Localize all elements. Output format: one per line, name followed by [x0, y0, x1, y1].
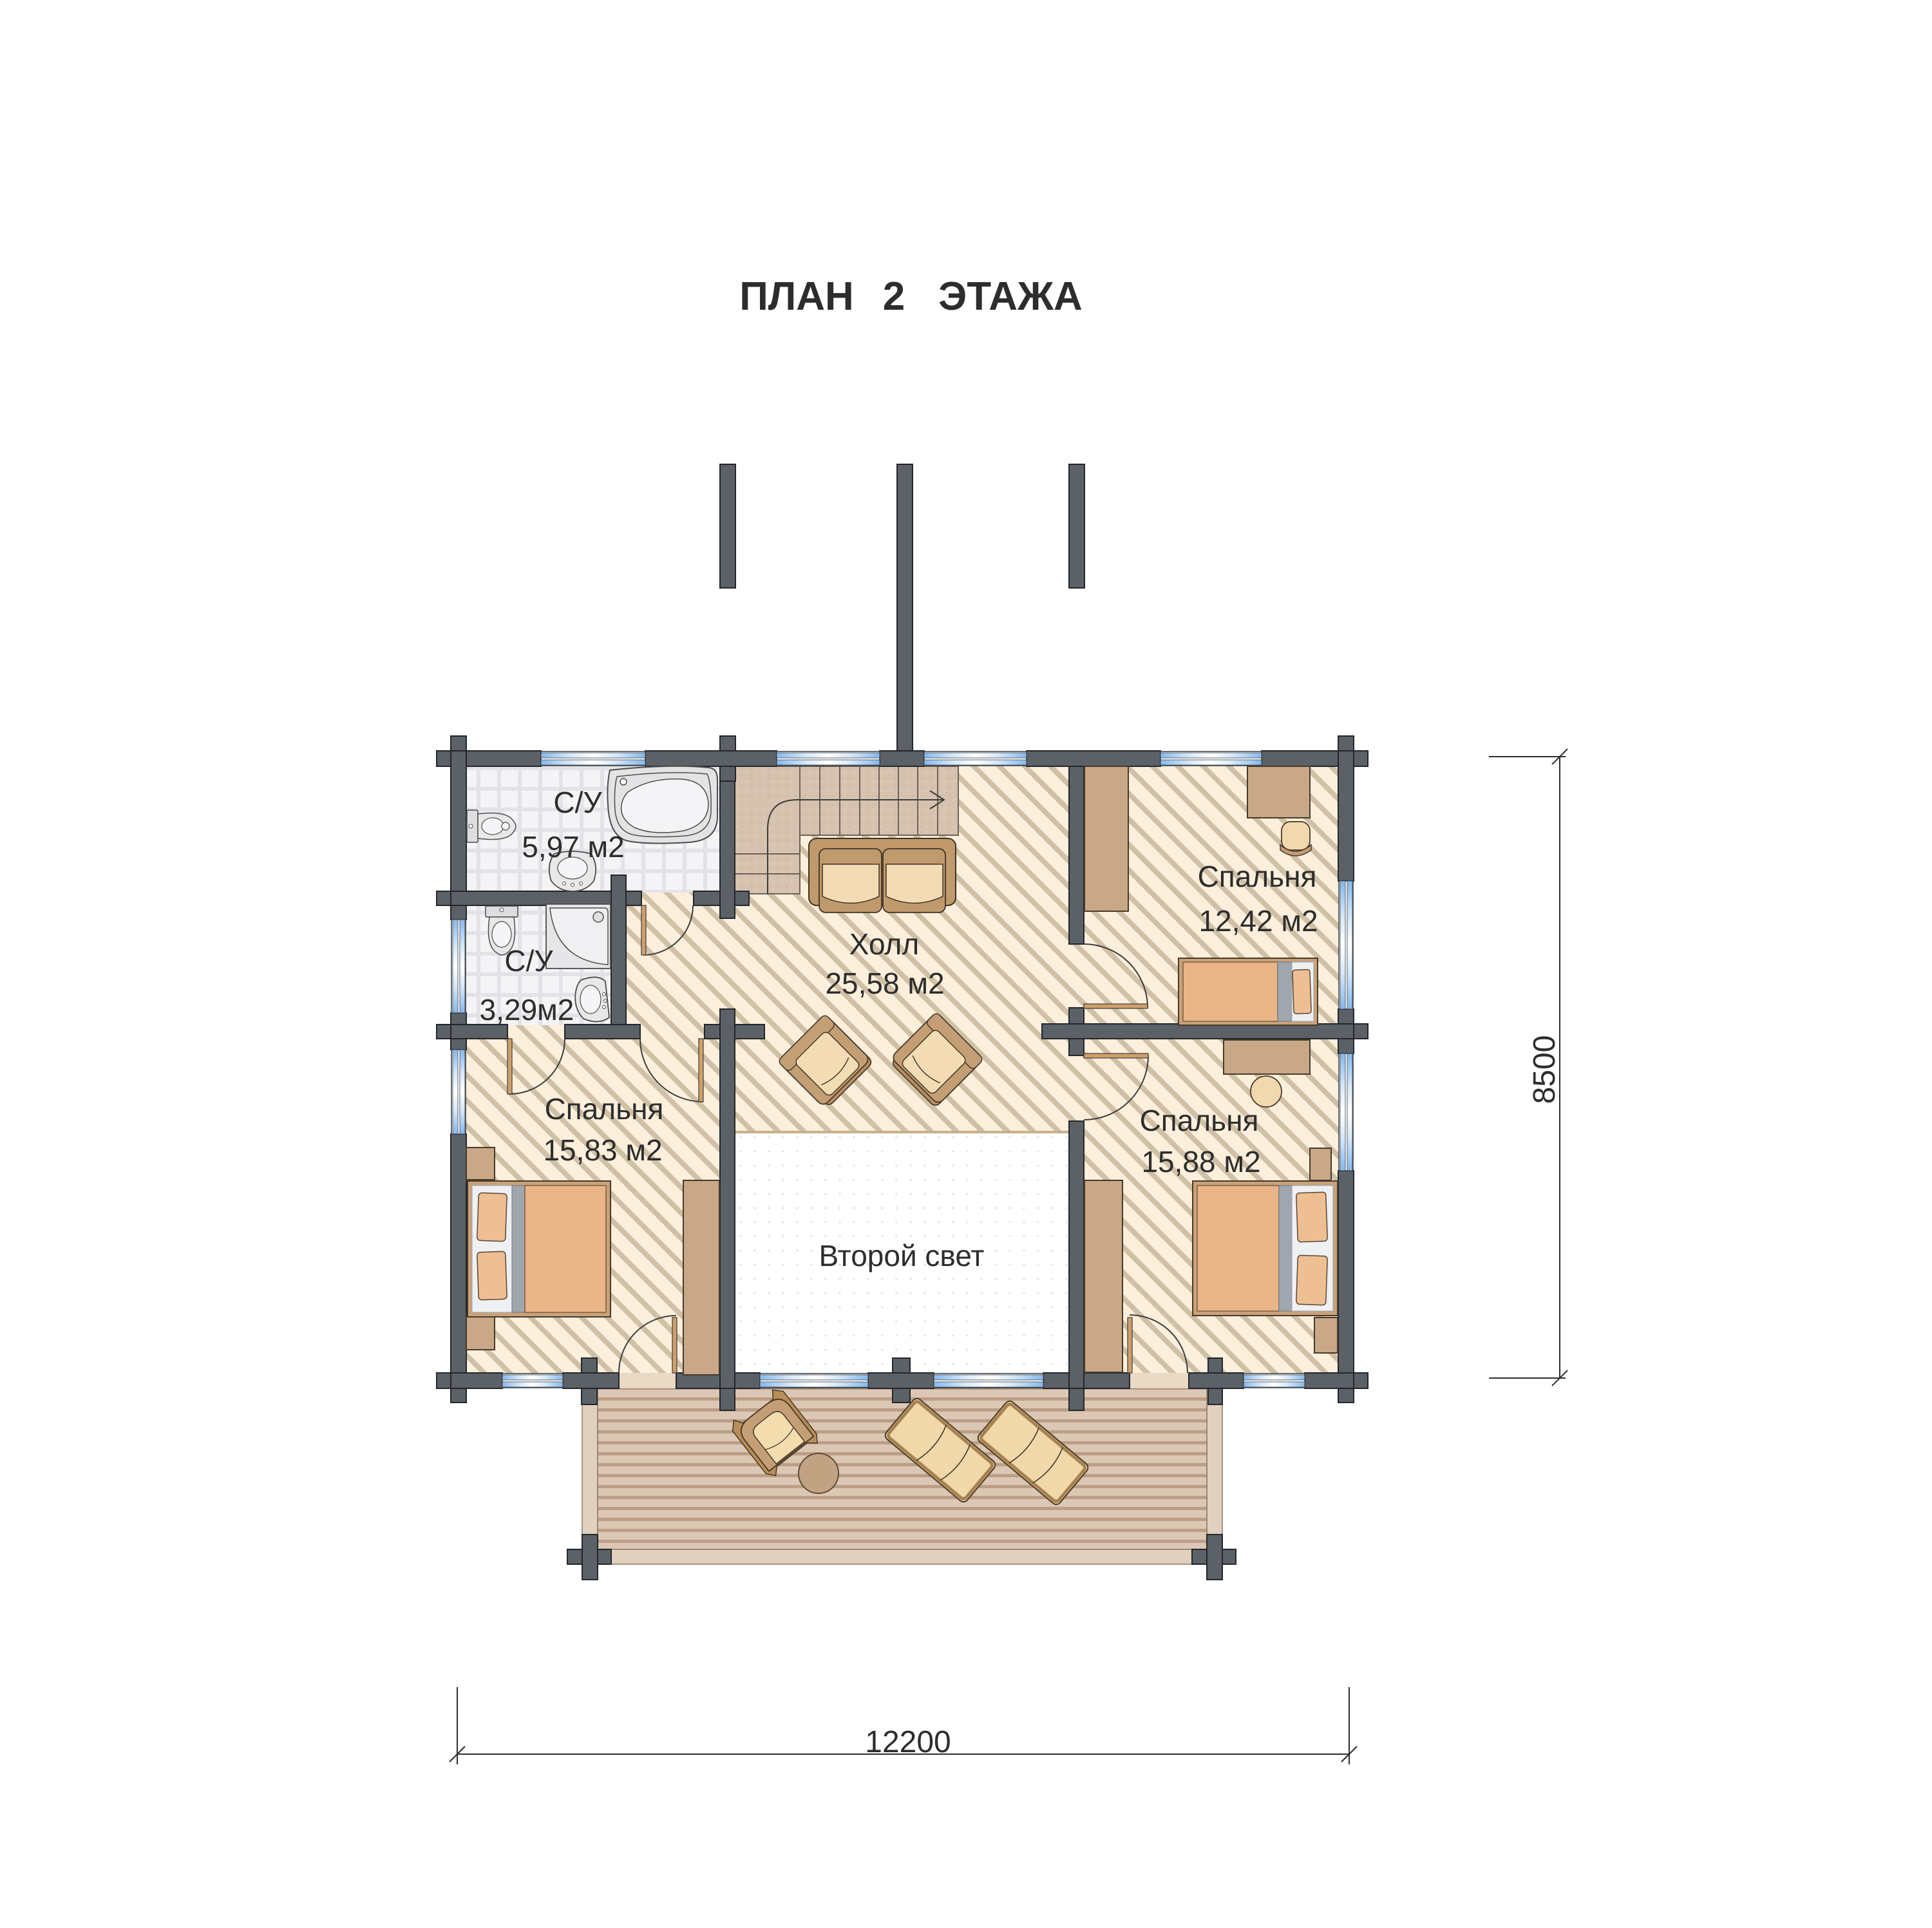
svg-text:ПЛАН: ПЛАН [739, 274, 854, 319]
svg-text:25,58 м2: 25,58 м2 [825, 967, 944, 1000]
svg-text:Спальня: Спальня [545, 1092, 664, 1126]
svg-text:Спальня: Спальня [1198, 860, 1317, 893]
svg-text:Спальня: Спальня [1140, 1104, 1259, 1137]
svg-text:15,83 м2: 15,83 м2 [543, 1133, 662, 1167]
svg-text:Холл: Холл [849, 927, 919, 961]
svg-text:ЭТАЖА: ЭТАЖА [938, 274, 1083, 319]
svg-text:5,97 м2: 5,97 м2 [522, 830, 625, 864]
svg-text:8500: 8500 [1528, 1035, 1562, 1104]
svg-text:12,42 м2: 12,42 м2 [1198, 904, 1318, 938]
svg-text:3,29м2: 3,29м2 [480, 993, 574, 1026]
svg-text:Второй свет: Второй свет [819, 1239, 985, 1272]
svg-text:12200: 12200 [865, 1725, 951, 1759]
svg-text:С/У: С/У [504, 944, 553, 978]
svg-text:15,88 м2: 15,88 м2 [1141, 1145, 1260, 1178]
svg-text:С/У: С/У [553, 786, 602, 819]
svg-text:2: 2 [883, 274, 905, 319]
